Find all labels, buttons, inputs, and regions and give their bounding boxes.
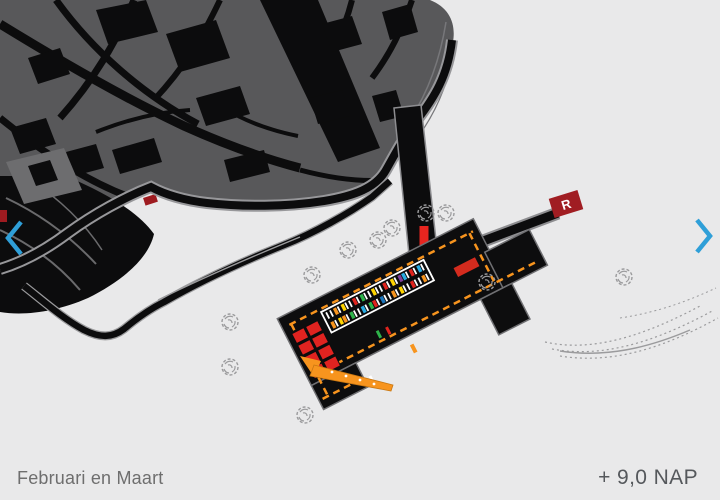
chevron-left-icon	[3, 218, 27, 258]
elevation-label: + 9,0 NAP	[598, 466, 698, 490]
next-phase-button[interactable]	[690, 214, 716, 258]
site-plan-map: R	[0, 0, 720, 500]
plan-viewer: R	[0, 0, 720, 500]
period-label: Februari en Maart	[17, 468, 163, 489]
prev-phase-button[interactable]	[2, 216, 28, 260]
chevron-right-icon	[691, 216, 715, 256]
